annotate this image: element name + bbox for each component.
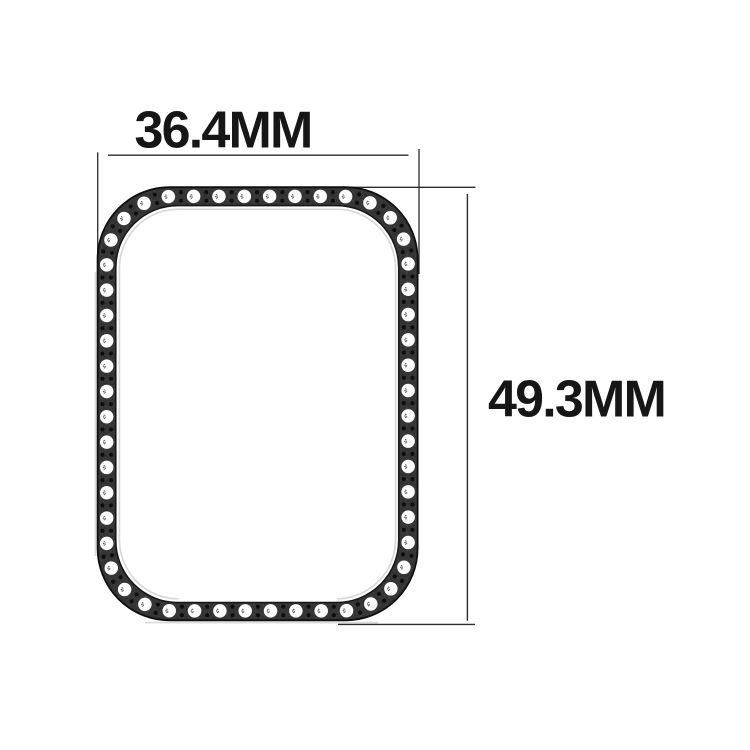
svg-text:36.4MM: 36.4MM: [134, 102, 311, 160]
svg-text:49.3MM: 49.3MM: [488, 371, 665, 429]
